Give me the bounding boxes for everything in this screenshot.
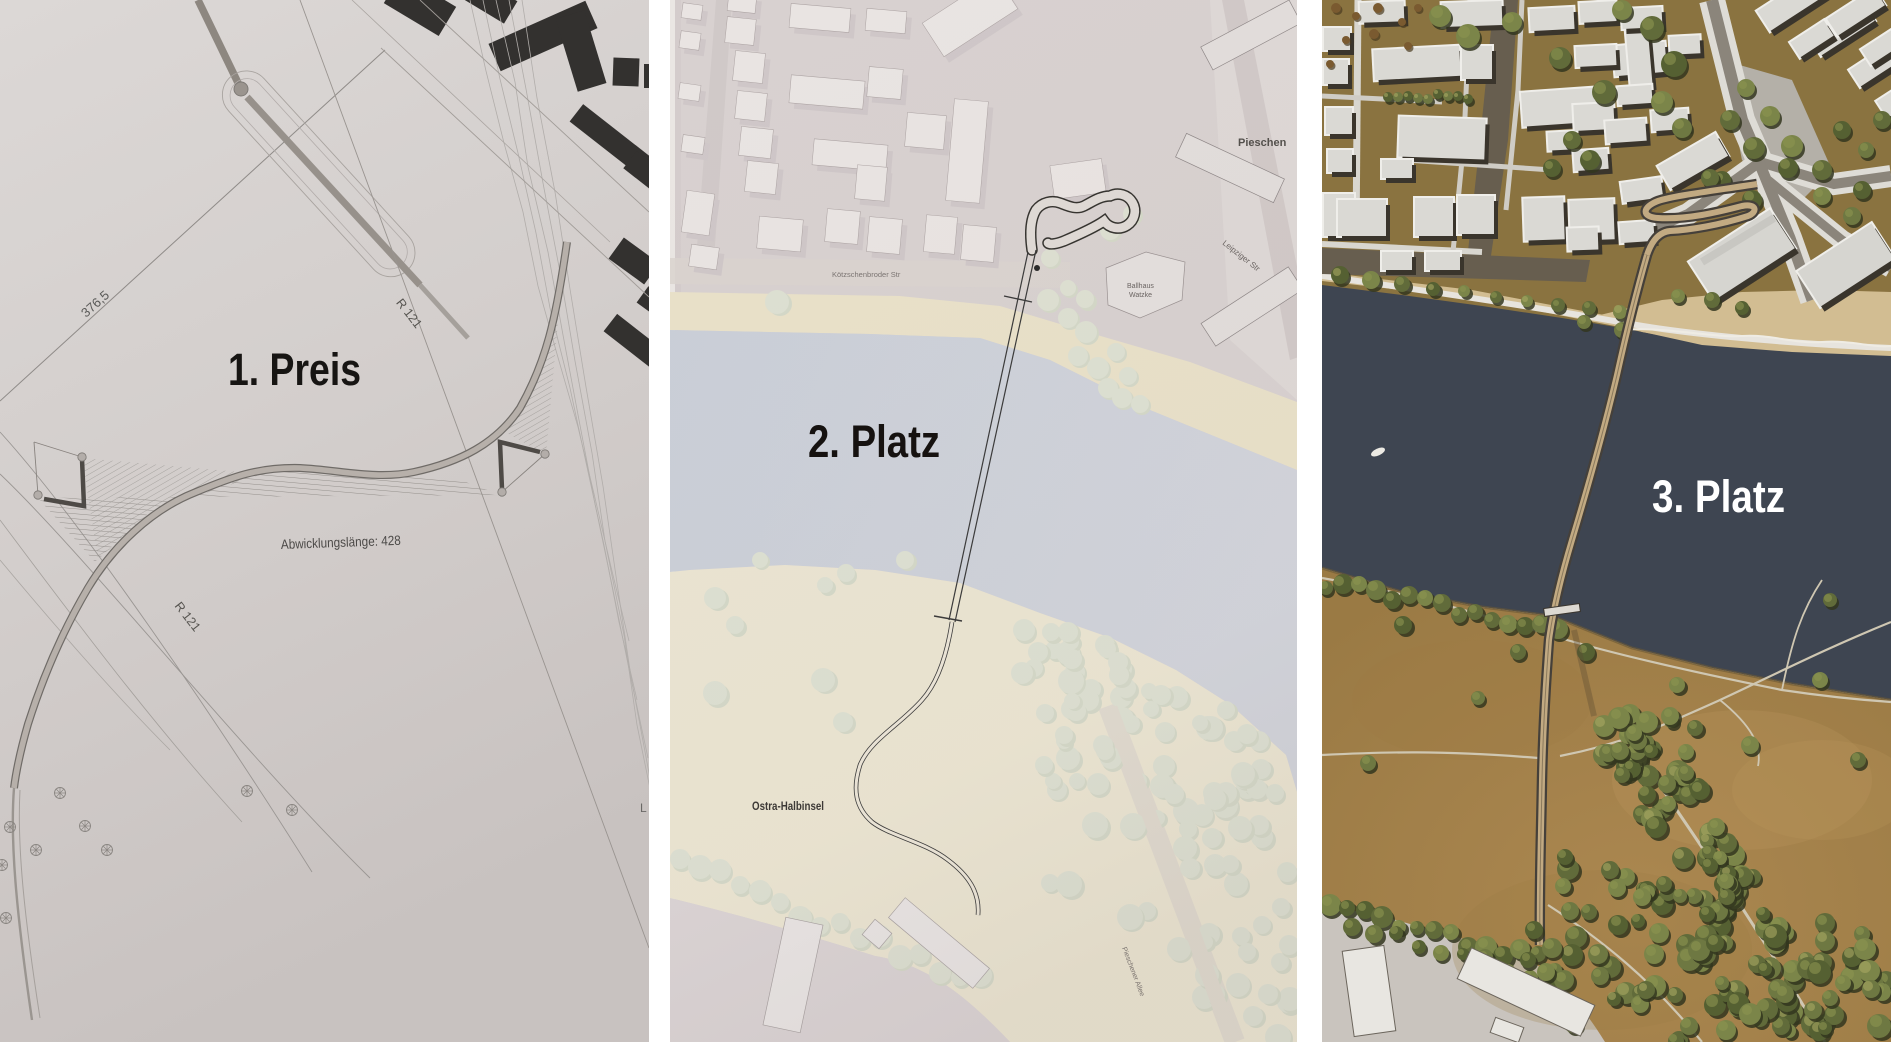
svg-text:1. Preis: 1. Preis [228, 344, 361, 395]
svg-text:3. Platz: 3. Platz [1652, 471, 1785, 522]
svg-text:L: L [640, 801, 647, 815]
